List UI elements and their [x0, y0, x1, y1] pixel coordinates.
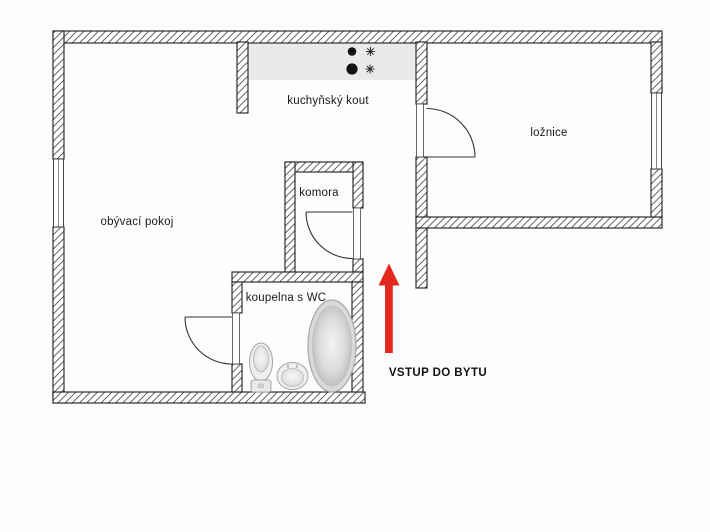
wall-top: [53, 31, 662, 43]
toilet-bowl-icon: [254, 346, 269, 372]
label-living-room: obývací pokoj: [101, 216, 174, 228]
burner-star-icon: [366, 47, 375, 56]
wall-hall-right-upper: [416, 42, 427, 104]
floor-plan: obývací pokoj kuchyňský kout komora koup…: [0, 0, 710, 532]
bathtub-basin-icon: [313, 306, 352, 386]
wall-pantry-top: [285, 162, 363, 172]
wall-bathroom-top: [232, 272, 363, 282]
burner-dot-icon: [346, 63, 357, 74]
pantry-door-frame: [354, 208, 361, 259]
pantry-door-swing-arc: [306, 212, 353, 259]
wall-bathroom-left-upper: [232, 282, 242, 313]
wall-kitchen-divider: [237, 42, 248, 113]
floor-plan-drawing: [0, 0, 710, 532]
bathroom-door-swing-arc: [185, 317, 232, 364]
label-bathroom: koupelna s WC: [246, 292, 327, 304]
bedroom-door-swing-arc: [427, 109, 476, 158]
bathroom-fixtures: [250, 300, 357, 392]
label-bedroom: ložnice: [530, 127, 567, 139]
entrance-arrow-icon: [379, 264, 400, 354]
wall-left-lower: [53, 227, 64, 403]
toilet-flush-button-icon: [259, 384, 264, 388]
label-entrance: VSTUP DO BYTU: [389, 367, 487, 379]
label-kitchen: kuchyňský kout: [287, 95, 368, 107]
kitchen-counter: [248, 43, 416, 80]
wall-bedroom-right-lower: [651, 169, 662, 217]
burner-dot-icon: [348, 47, 357, 56]
burner-star-icon: [366, 65, 375, 74]
bathroom-door-frame: [233, 313, 240, 364]
wall-left-upper: [53, 31, 64, 159]
wall-pantry-left: [285, 162, 295, 272]
wall-bathroom-left-lower: [232, 364, 242, 392]
wall-bedroom-bottom: [416, 217, 662, 228]
wall-pantry-right-upper: [353, 162, 363, 208]
sink-basin-icon: [282, 369, 304, 387]
wall-pantry-right-lower: [353, 259, 363, 272]
bedroom-door-frame: [417, 104, 424, 157]
wall-bottom: [53, 392, 365, 403]
wall-bedroom-right-upper: [651, 42, 662, 93]
label-pantry: komora: [299, 187, 339, 199]
